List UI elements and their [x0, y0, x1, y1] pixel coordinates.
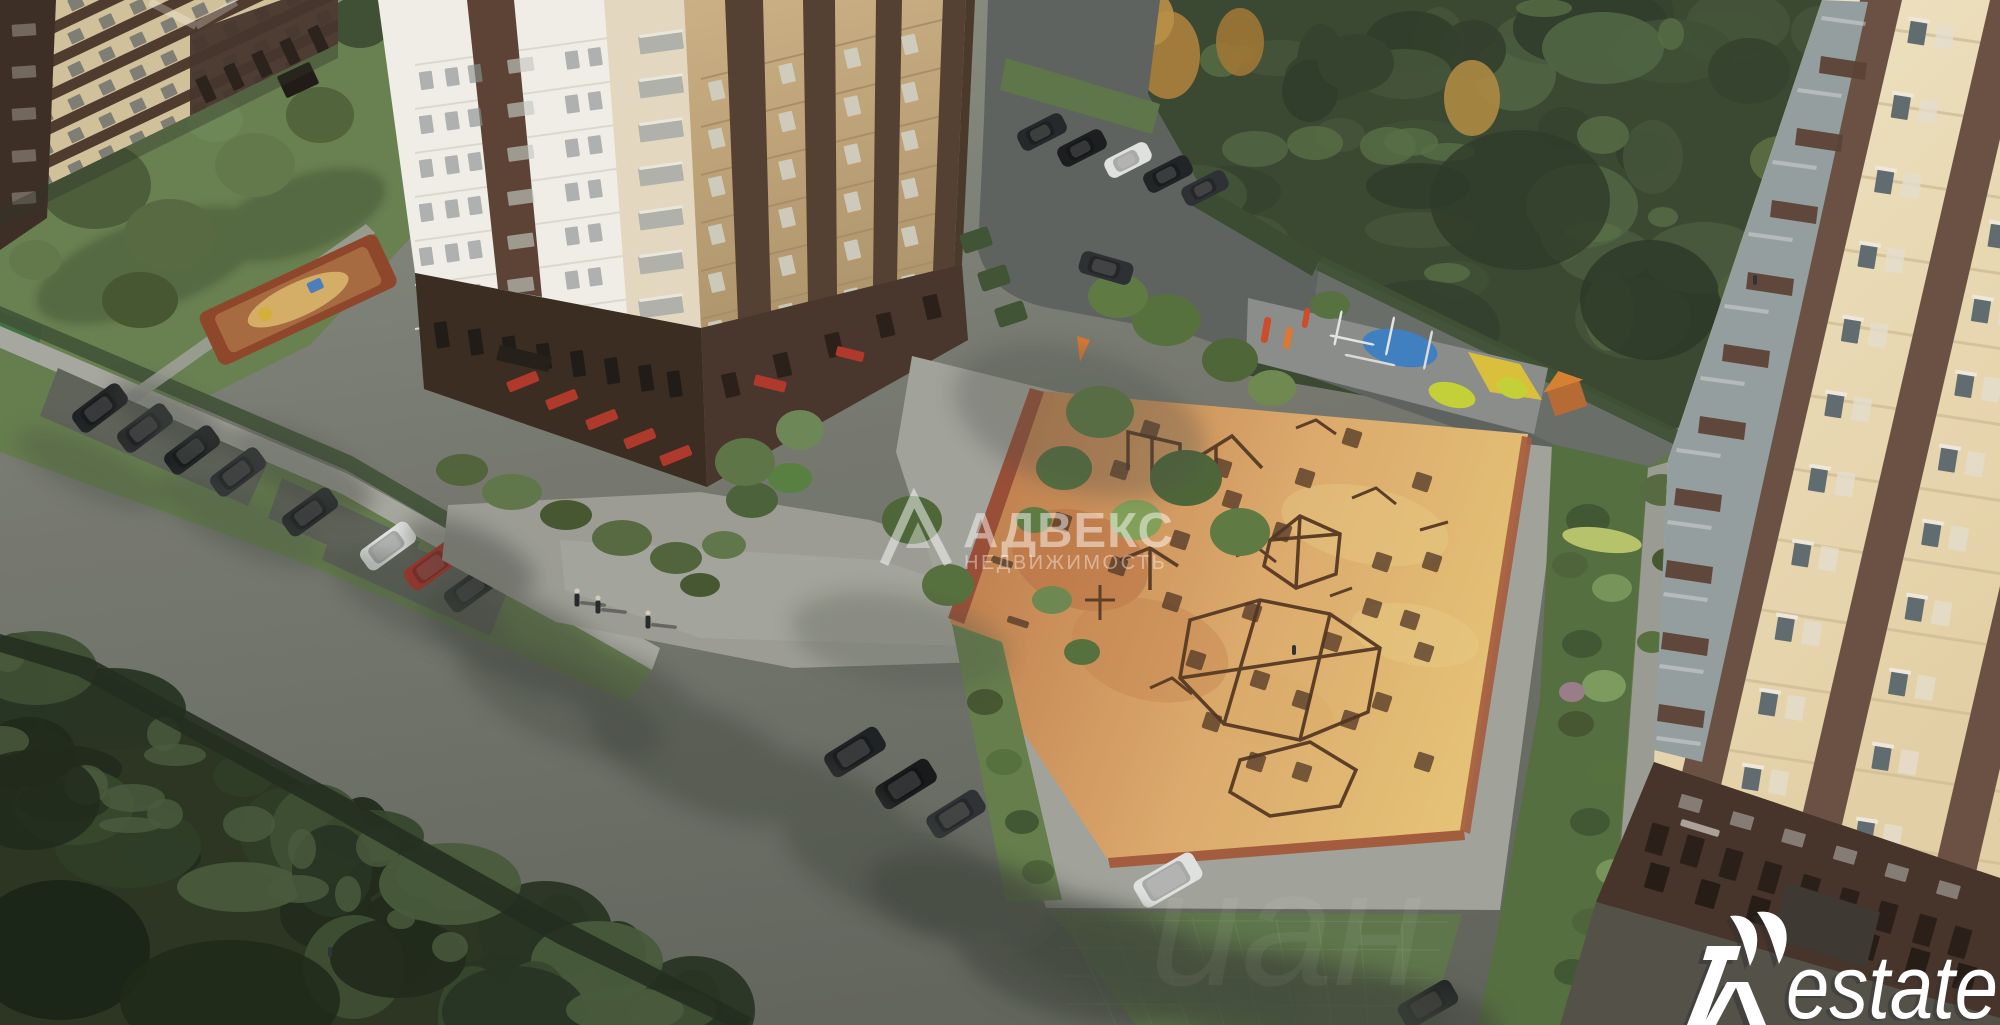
svg-text:АДВЕКС: АДВЕКС	[963, 504, 1174, 558]
svg-text:иан: иан	[1150, 836, 1424, 1020]
svg-text:estate: estate	[1786, 938, 1998, 1025]
svg-text:НЕДВИЖИМОСТЬ: НЕДВИЖИМОСТЬ	[964, 552, 1167, 574]
